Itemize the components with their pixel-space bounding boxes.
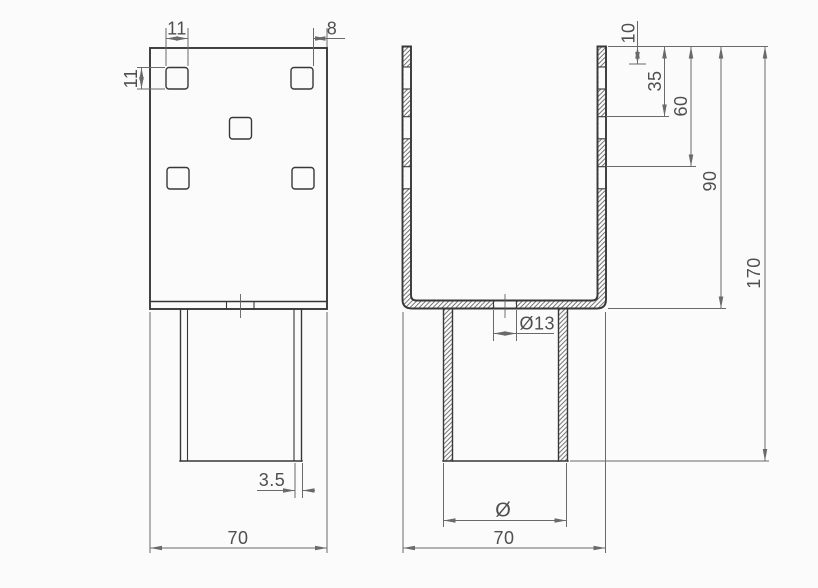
dim-label-hole-row-1: 10 [618, 22, 638, 43]
dim-label-overall-height: 170 [744, 257, 764, 289]
front-view: 11 8 11 3.5 70 [121, 19, 345, 554]
dim-label-tube-diameter: Ø [495, 500, 511, 522]
dim-label-hole-row-3: 60 [671, 95, 691, 116]
front-square-hole-mid-right [292, 168, 314, 190]
section-channel-hatch [403, 47, 607, 309]
front-square-hole-mid-left [167, 168, 189, 190]
section-wall-gap [599, 167, 606, 189]
section-wall-gap [404, 167, 411, 189]
dim-front-width [150, 312, 327, 553]
section-tube-right-wall-hatch [559, 310, 567, 462]
front-square-hole-top-right [291, 68, 313, 90]
dim-label-wall-thickness: 3.5 [259, 470, 286, 490]
dim-label-channel-depth: 90 [700, 170, 720, 191]
technical-drawing: 11 8 11 3.5 70 [0, 0, 818, 588]
section-tube-left-wall-hatch [444, 310, 452, 462]
section-wall-hole-edges [403, 67, 607, 189]
section-wall-gap [404, 67, 411, 89]
dim-label-square-width: 11 [167, 19, 187, 39]
dim-label-hole-row-2: 35 [645, 70, 665, 91]
section-wall-gap [599, 67, 606, 89]
section-wall-gap [404, 117, 411, 139]
section-channel-outline [403, 47, 607, 309]
dim-label-edge-offset: 8 [327, 19, 338, 39]
dim-square-height [137, 68, 165, 90]
front-square-hole-center [230, 118, 252, 140]
front-square-hole-top-left [166, 68, 188, 90]
dim-label-square-height: 11 [121, 69, 141, 89]
front-plate-outline [150, 48, 327, 309]
dim-label-web-hole-diameter: Ø13 [520, 314, 556, 334]
dim-label-section-width: 70 [493, 528, 514, 548]
section-wall-gap [599, 117, 606, 139]
technical-drawing-canvas: 11 8 11 3.5 70 [0, 0, 818, 588]
front-tube [180, 309, 302, 461]
dim-label-front-width: 70 [227, 528, 248, 548]
section-view: 10 35 60 90 170 Ø13 Ø 70 [403, 21, 770, 553]
